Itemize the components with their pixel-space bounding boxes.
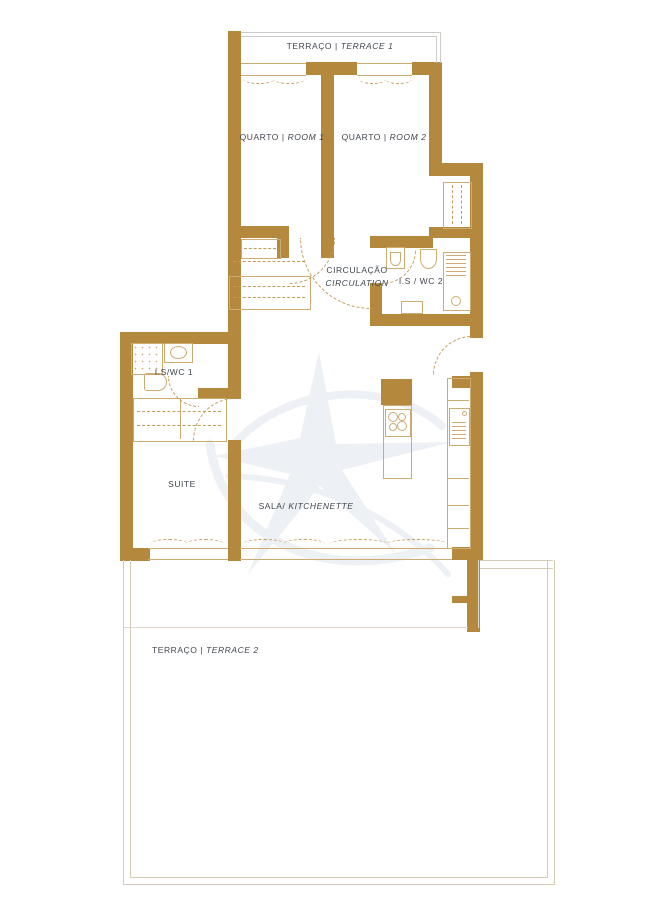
stove-burner [389, 423, 397, 431]
wall-room2-right [429, 75, 442, 175]
door-arc-entrance [433, 336, 472, 375]
kitchen-counter [447, 378, 471, 549]
wall-divider-suite-lower [228, 440, 241, 561]
stove-burner [398, 413, 406, 421]
wall-top-right [412, 62, 442, 75]
label-sala-en: KITCHENETTE [288, 501, 353, 511]
stove-burner [388, 412, 398, 422]
wardrobe-corridor-rail [233, 297, 305, 298]
wardrobe-room1-rail [244, 248, 276, 249]
label-room2-en: ROOM 2 [390, 132, 427, 142]
label-room1-sep: | [282, 132, 285, 142]
shower-drain-wc2 [451, 296, 461, 306]
curtain-sala [386, 539, 448, 549]
terrace2-border-inner [130, 560, 548, 878]
wardrobe-room2-niche [443, 182, 472, 229]
floor-plan: TERRAÇO | TERRACE 1 QUARTO | ROOM 1 QUAR… [0, 0, 649, 908]
curtain-room1 [243, 74, 275, 84]
wardrobe-corridor-rail [233, 286, 305, 287]
label-terrace2: TERRAÇO | TERRACE 2 [152, 644, 259, 657]
label-wc1: I.S/WC 1 [155, 366, 193, 379]
label-room1-en: ROOM 1 [288, 132, 325, 142]
label-circulation-pt: CIRCULAÇÃO [326, 265, 387, 275]
label-room1-pt: QUARTO [240, 132, 279, 142]
toilet-fixture-wc2 [420, 249, 437, 269]
label-circulation-en: CIRCULATION [325, 278, 388, 288]
label-sala-pt: SALA/ [259, 501, 286, 511]
window-suite [148, 548, 228, 560]
stove-burner [397, 421, 407, 431]
curtain-sala [243, 539, 285, 549]
wardrobe-suite-divider [180, 399, 181, 439]
wall-kitchen-island-head [381, 379, 412, 405]
shower-tray-wc2 [446, 255, 466, 279]
counter-divider [448, 400, 469, 401]
wardrobe-room2-rail [461, 185, 462, 224]
label-terrace2-pt: TERRAÇO [152, 645, 197, 655]
label-terrace2-sep: | [200, 645, 203, 655]
label-terrace1: TERRAÇO | TERRACE 1 [287, 40, 394, 53]
wardrobe-room1 [241, 239, 281, 259]
label-terrace2-en: TERRACE 2 [206, 645, 259, 655]
label-room2-pt: QUARTO [342, 132, 381, 142]
sink-basin-wc1 [170, 346, 187, 359]
window-sala [240, 548, 452, 560]
label-terrace1-sep: | [335, 41, 338, 51]
counter-divider [448, 478, 469, 479]
curtain-sala [283, 539, 325, 549]
label-room2: QUARTO | ROOM 2 [342, 131, 427, 144]
label-room2-sep: | [384, 132, 387, 142]
appliance-handle [462, 411, 467, 416]
terrace2-step-line-h [123, 627, 468, 628]
counter-divider [448, 505, 469, 506]
label-terrace1-en: TERRACE 1 [341, 41, 394, 51]
terrace2-border-top-right [480, 560, 553, 569]
label-terrace1-pt: TERRAÇO [287, 41, 332, 51]
label-room1: QUARTO | ROOM 1 [240, 131, 325, 144]
terrace2-step-line-v [478, 560, 479, 628]
appliance-grill [452, 422, 466, 441]
label-wc2-text: I.S / WC 2 [399, 276, 443, 286]
curtain-room1 [273, 74, 305, 84]
label-suite-text: SUITE [168, 479, 196, 489]
wall-kitchen-right [470, 372, 483, 548]
curtain-suite [186, 539, 224, 549]
curtain-room2 [359, 74, 386, 84]
label-wc2: I.S / WC 2 [399, 275, 443, 288]
wall-rooms-divider [321, 70, 334, 258]
counter-divider [448, 528, 469, 529]
curtain-suite [150, 539, 188, 549]
curtain-sala [330, 539, 388, 549]
label-circulation: CIRCULAÇÃO CIRCULATION [325, 264, 388, 290]
curtain-room2 [385, 74, 412, 84]
label-wc1-text: I.S/WC 1 [155, 367, 193, 377]
wardrobe-room2-rail [452, 185, 453, 224]
label-sala: SALA/ KITCHENETTE [259, 500, 354, 513]
bath-mat-wc2 [401, 301, 423, 314]
wall-wc2-bottom [370, 314, 482, 326]
label-suite: SUITE [168, 478, 196, 491]
